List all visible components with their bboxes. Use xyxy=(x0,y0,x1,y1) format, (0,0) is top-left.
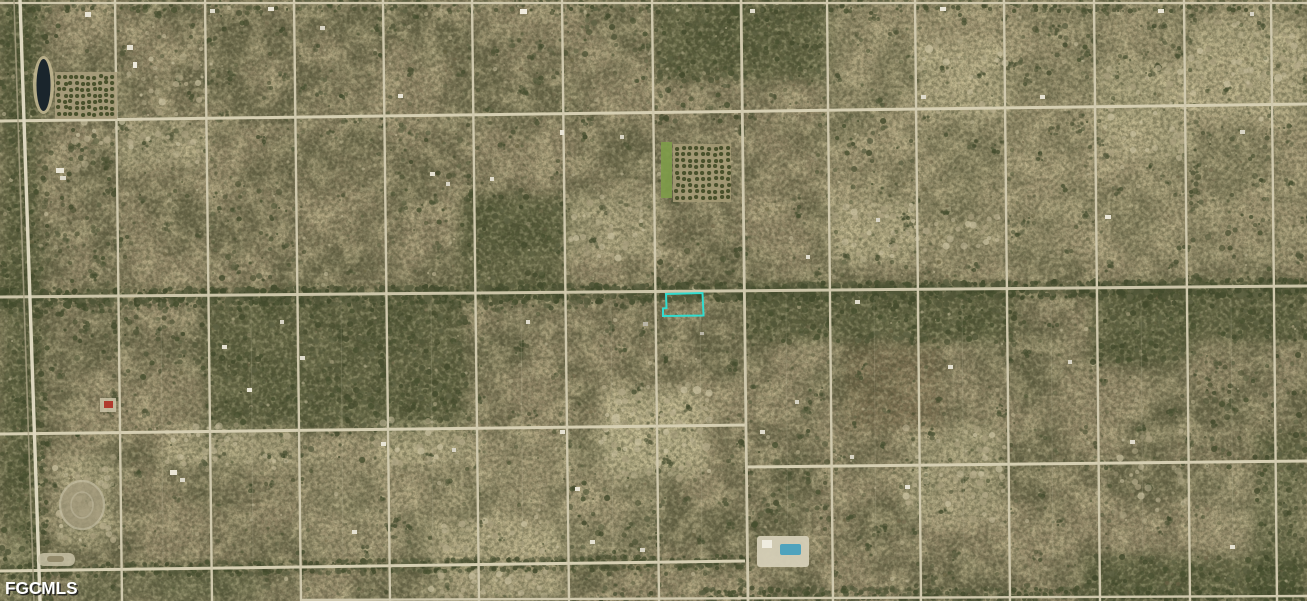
svg-text:FGCMLS: FGCMLS xyxy=(5,578,78,598)
